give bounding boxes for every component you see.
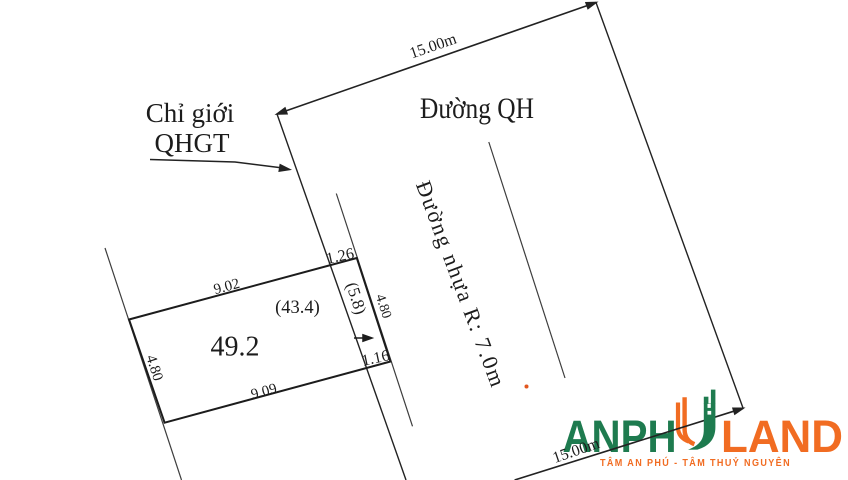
svg-text:(43.4): (43.4) — [275, 298, 320, 318]
svg-text:QHGT: QHGT — [155, 128, 230, 158]
svg-text:LAND: LAND — [721, 411, 843, 462]
svg-text:Đường QH: Đường QH — [420, 92, 534, 125]
svg-text:Chỉ giới: Chỉ giới — [146, 98, 235, 128]
svg-text:TÂM AN PHÚ - TÂM THUỶ NGUYÊN: TÂM AN PHÚ - TÂM THUỶ NGUYÊN — [600, 457, 791, 469]
svg-text:49.2: 49.2 — [211, 332, 260, 363]
